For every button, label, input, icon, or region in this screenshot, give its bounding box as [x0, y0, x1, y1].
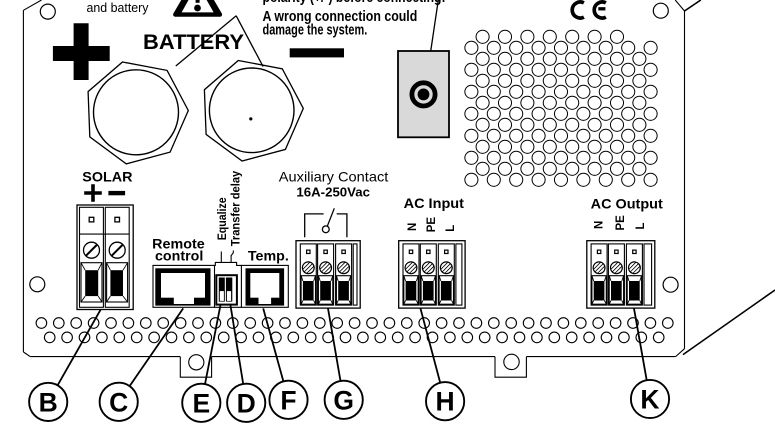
svg-text:AC Output: AC Output: [591, 196, 663, 212]
svg-text:B: B: [39, 387, 58, 417]
svg-text:damage the system.: damage the system.: [263, 23, 368, 39]
svg-text:L: L: [445, 225, 457, 232]
svg-text:16A-250Vac: 16A-250Vac: [296, 184, 370, 199]
svg-text:G: G: [333, 385, 354, 415]
svg-text:C: C: [109, 387, 128, 417]
svg-text:AC Input: AC Input: [404, 195, 465, 211]
svg-text:Temp.: Temp.: [248, 249, 289, 264]
svg-text:L: L: [635, 222, 647, 229]
svg-text:Transfer delay: Transfer delay: [228, 170, 242, 246]
svg-text:PE: PE: [615, 215, 627, 231]
svg-text:K: K: [640, 385, 659, 415]
svg-text:PE: PE: [426, 217, 438, 233]
svg-text:polarity (+/-) before connecti: polarity (+/-) before connecting!: [263, 0, 446, 6]
svg-text:N: N: [407, 223, 419, 231]
svg-text:SOLAR: SOLAR: [82, 169, 132, 185]
svg-text:and battery: and battery: [87, 0, 149, 15]
svg-text:Auxiliary Contact: Auxiliary Contact: [279, 168, 389, 184]
svg-text:N: N: [593, 221, 605, 229]
svg-text:D: D: [237, 388, 256, 418]
svg-text:control: control: [155, 249, 203, 264]
svg-text:Equalize: Equalize: [215, 197, 229, 240]
svg-text:E: E: [192, 388, 210, 418]
svg-text:H: H: [436, 387, 455, 417]
svg-text:F: F: [280, 385, 296, 415]
